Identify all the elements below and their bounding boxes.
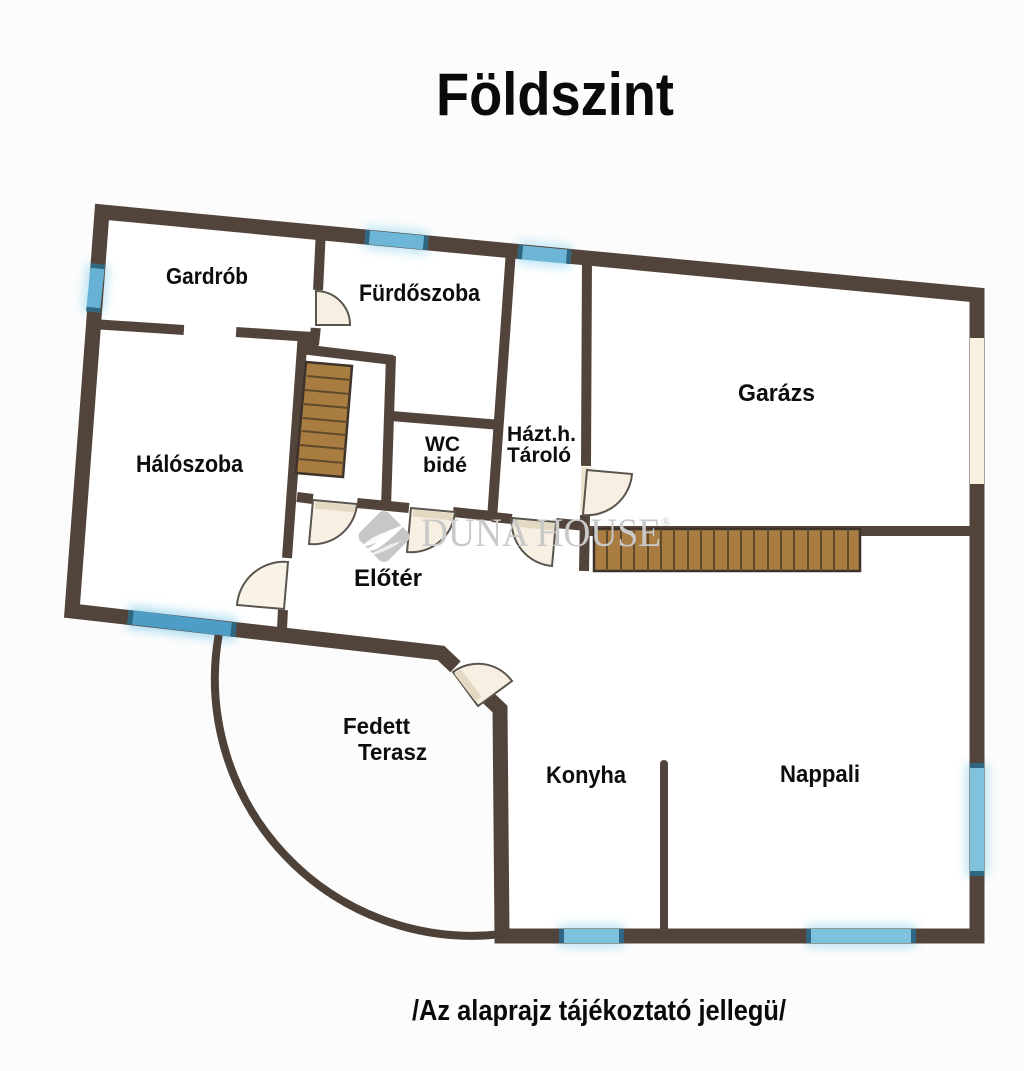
svg-text:Földszint: Földszint [436, 61, 674, 128]
svg-text:/Az alaprajz tájékoztató jelle: /Az alaprajz tájékoztató jellegü/ [412, 995, 786, 1027]
svg-text:Terasz: Terasz [358, 739, 427, 765]
svg-text:Gardrób: Gardrób [166, 263, 248, 289]
svg-text:Fedett: Fedett [343, 713, 410, 739]
svg-text:Házt.h.: Házt.h. [507, 423, 576, 446]
svg-text:Konyha: Konyha [546, 762, 627, 789]
svg-text:Előtér: Előtér [354, 565, 422, 592]
svg-text:Tároló: Tároló [507, 444, 571, 467]
svg-text:®: ® [661, 514, 671, 529]
svg-text:Fürdőszoba: Fürdőszoba [359, 280, 481, 307]
svg-text:WC: WC [425, 433, 460, 456]
svg-text:Garázs: Garázs [738, 380, 815, 407]
svg-text:Nappali: Nappali [780, 761, 860, 788]
svg-text:bidé: bidé [423, 454, 467, 477]
svg-text:Hálószoba: Hálószoba [136, 451, 244, 478]
svg-text:DUNA HOUSE: DUNA HOUSE [421, 510, 661, 555]
